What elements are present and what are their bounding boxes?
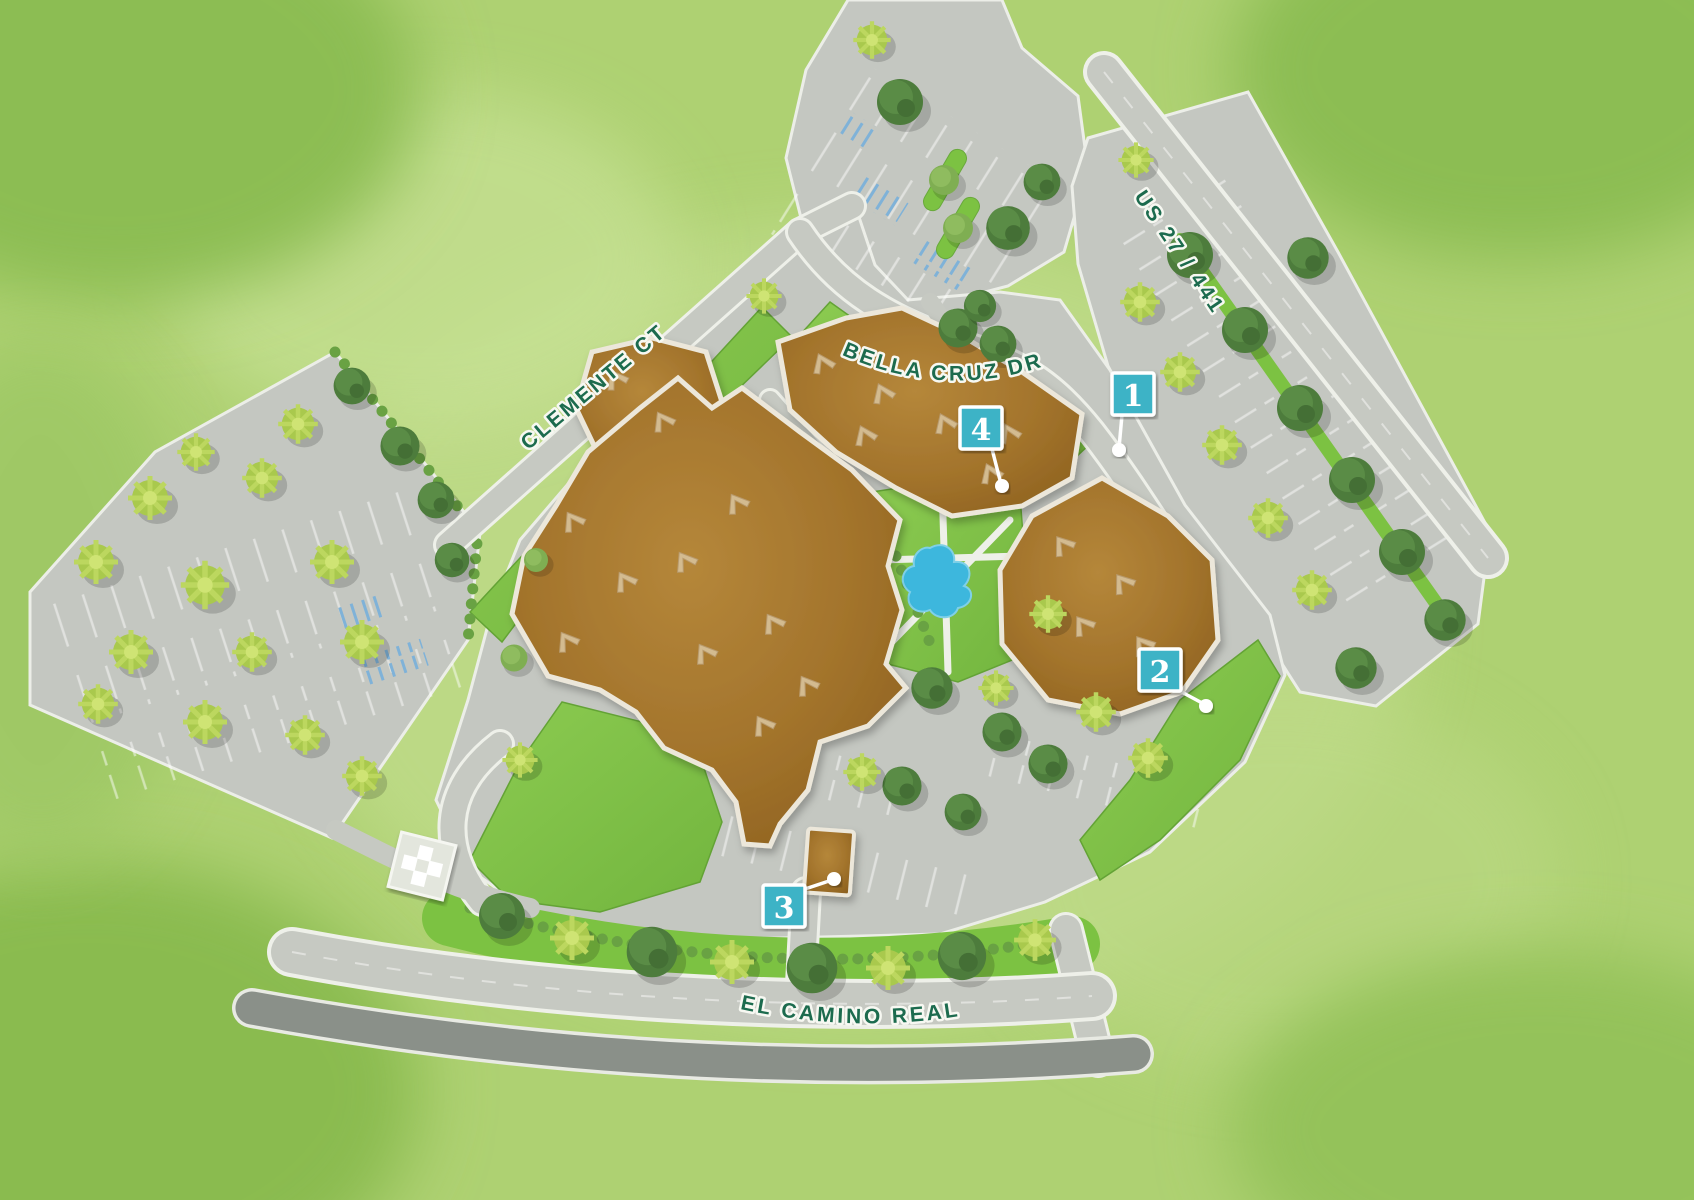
marker-4-number: 4 — [971, 413, 992, 448]
helipad-icon — [388, 832, 456, 900]
marker-3-dot — [827, 872, 841, 886]
campus-map: CLEMENTE CT BELLA CRUZ DR US 27 / 441 EL… — [0, 0, 1694, 1200]
marker-4-dot — [995, 479, 1009, 493]
marker-1-dot — [1112, 443, 1126, 457]
marker-3-number: 3 — [774, 891, 795, 926]
campus-map-svg: CLEMENTE CT BELLA CRUZ DR US 27 / 441 EL… — [0, 0, 1694, 1200]
marker-2-dot — [1199, 699, 1213, 713]
marker-1-number: 1 — [1123, 379, 1144, 414]
marker-2-number: 2 — [1150, 655, 1171, 690]
